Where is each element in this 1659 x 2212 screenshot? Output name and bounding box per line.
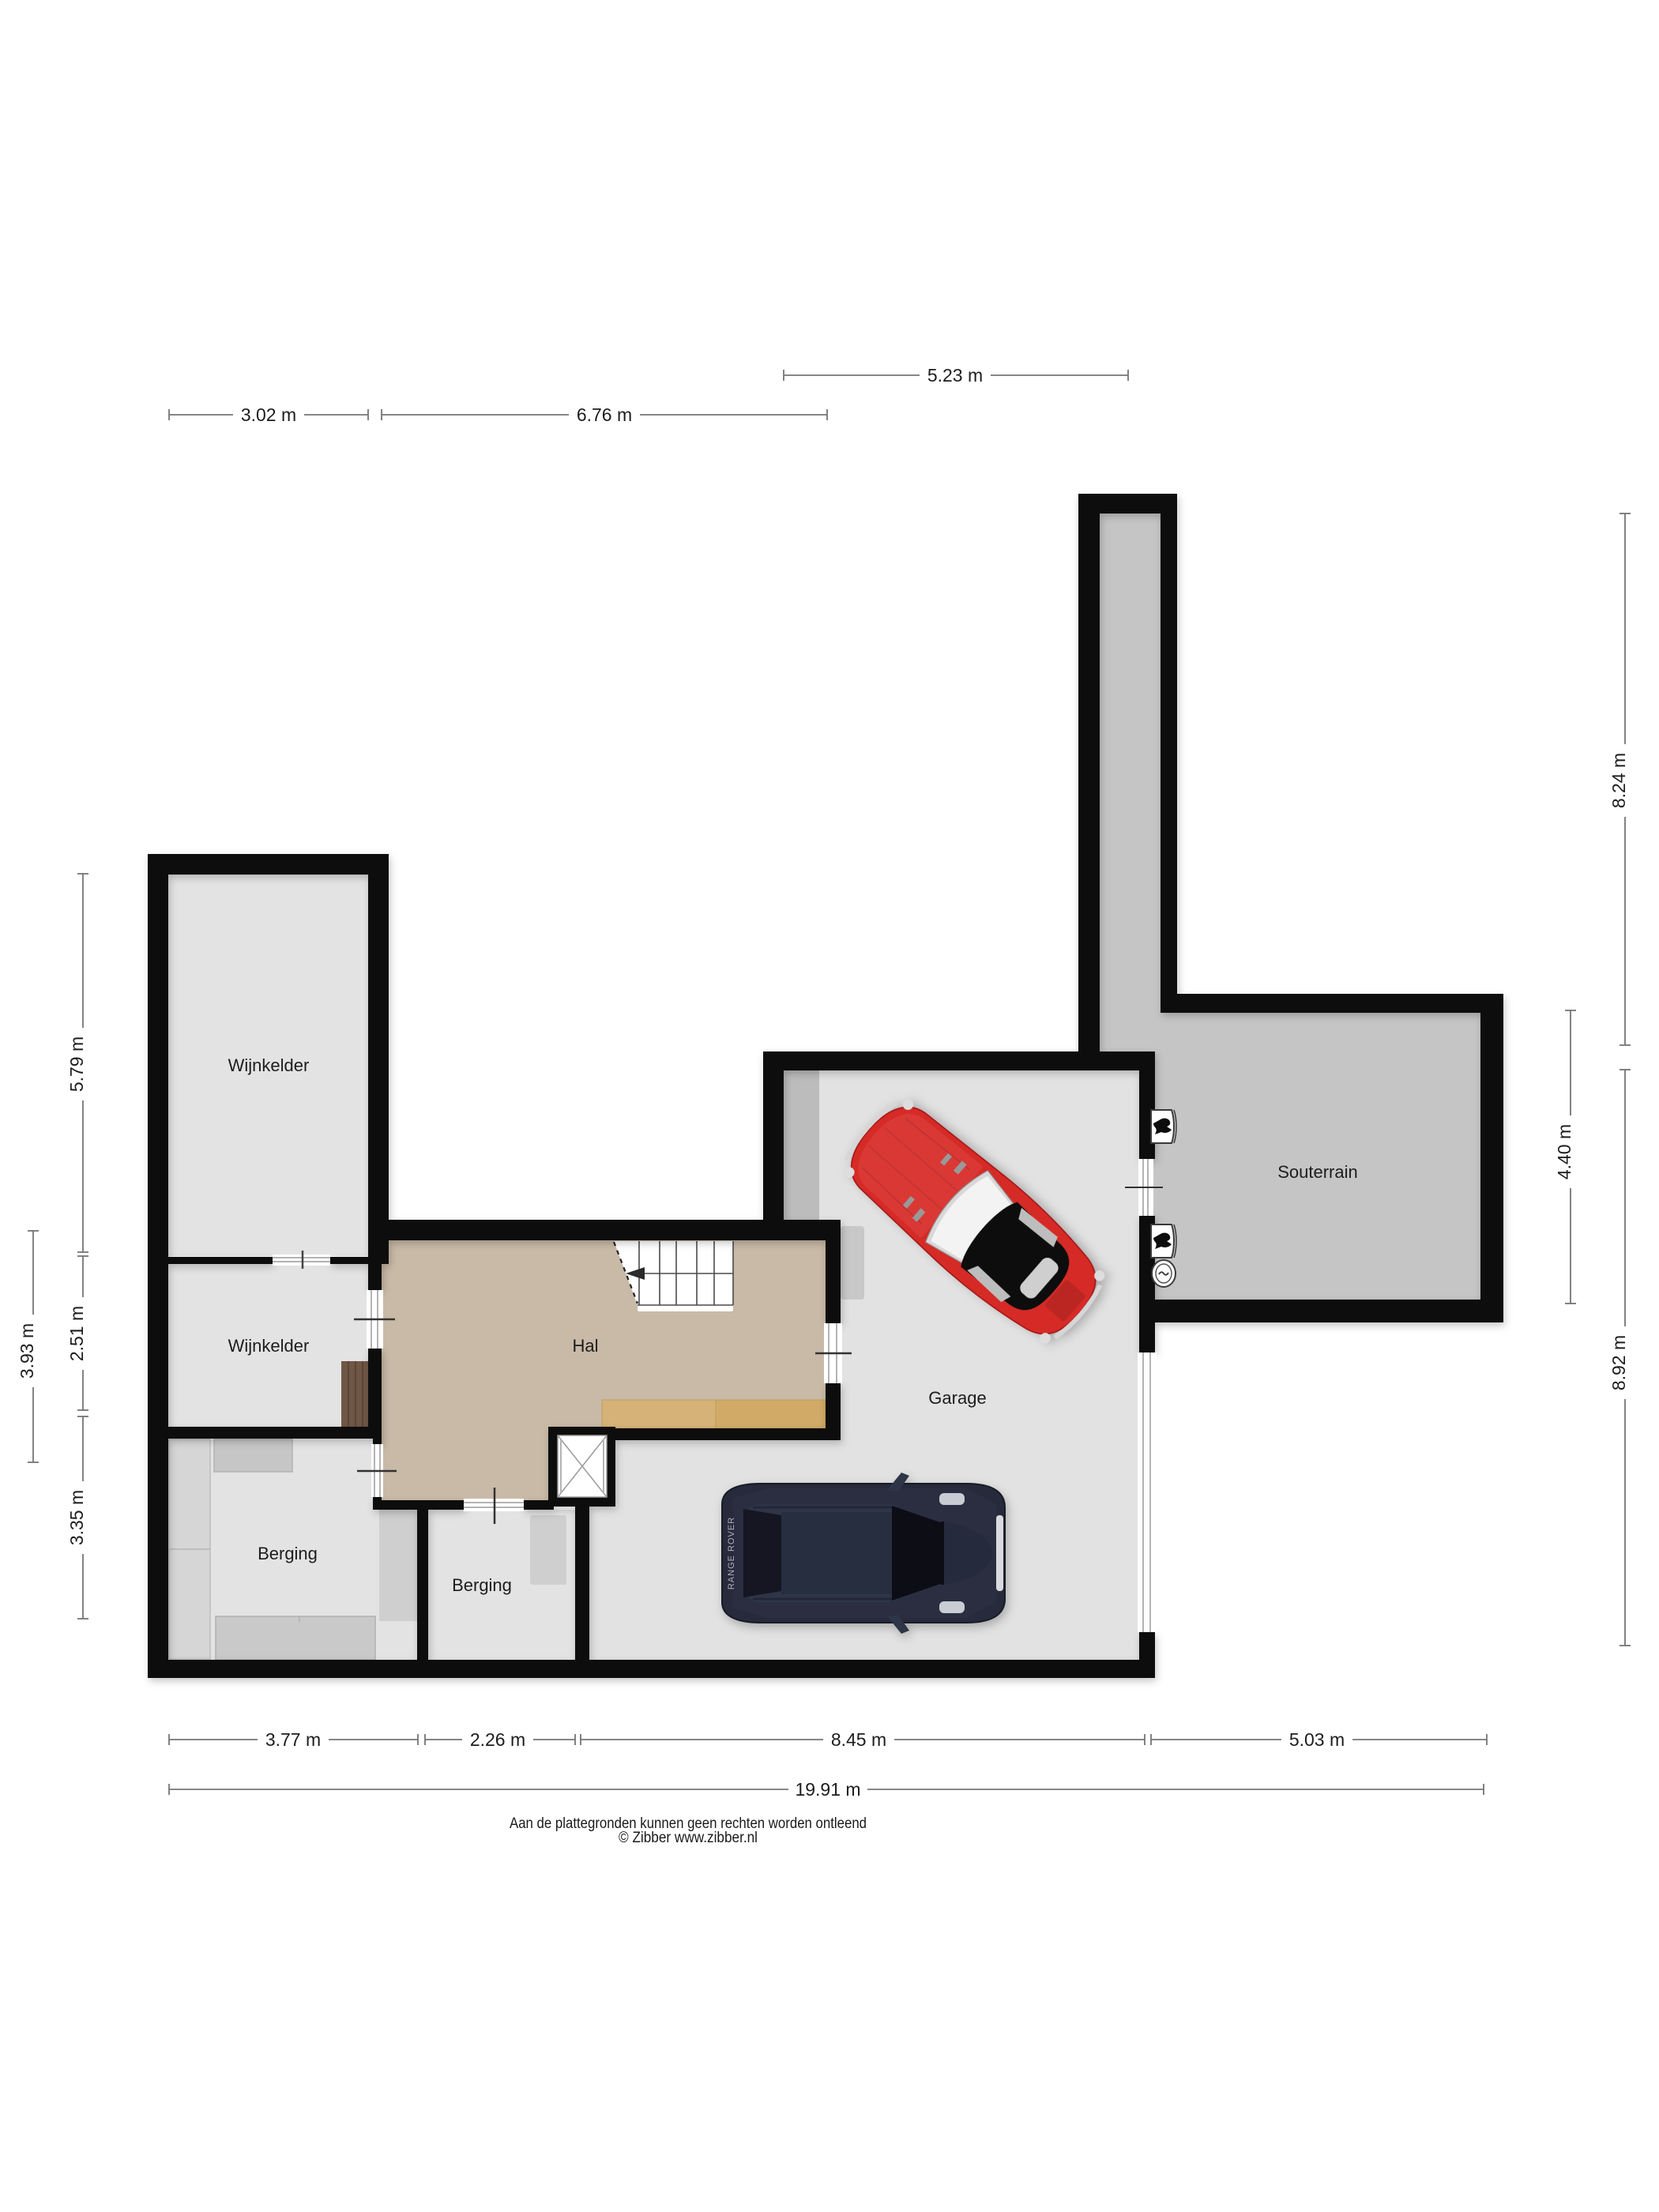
svg-text:3.35 m: 3.35 m (66, 1490, 87, 1545)
svg-text:6.76 m: 6.76 m (577, 404, 632, 425)
svg-text:5.23 m: 5.23 m (927, 365, 983, 386)
svg-text:5.79 m: 5.79 m (66, 1036, 87, 1092)
svg-text:4.40 m: 4.40 m (1554, 1124, 1574, 1179)
svg-text:2.26 m: 2.26 m (470, 1729, 525, 1750)
svg-text:Wijnkelder: Wijnkelder (228, 1055, 310, 1075)
svg-text:8.45 m: 8.45 m (831, 1729, 886, 1750)
svg-text:5.03 m: 5.03 m (1289, 1729, 1345, 1750)
svg-text:Berging: Berging (258, 1544, 318, 1563)
svg-text:2.51 m: 2.51 m (66, 1306, 87, 1361)
svg-text:8.92 m: 8.92 m (1608, 1335, 1629, 1390)
svg-text:3.02 m: 3.02 m (241, 404, 296, 425)
svg-text:3.77 m: 3.77 m (265, 1729, 321, 1750)
svg-text:8.24 m: 8.24 m (1608, 753, 1629, 808)
svg-text:RANGE ROVER: RANGE ROVER (727, 1517, 736, 1589)
svg-text:19.91 m: 19.91 m (795, 1779, 860, 1800)
svg-text:Wijnkelder: Wijnkelder (228, 1336, 310, 1356)
svg-text:© Zibber www.zibber.nl: © Zibber www.zibber.nl (619, 1830, 758, 1846)
svg-text:Berging: Berging (452, 1575, 512, 1595)
svg-text:Hal: Hal (572, 1336, 598, 1356)
svg-text:Souterrain: Souterrain (1277, 1162, 1358, 1182)
svg-text:3.93 m: 3.93 m (17, 1323, 37, 1379)
svg-text:Garage: Garage (928, 1388, 986, 1408)
